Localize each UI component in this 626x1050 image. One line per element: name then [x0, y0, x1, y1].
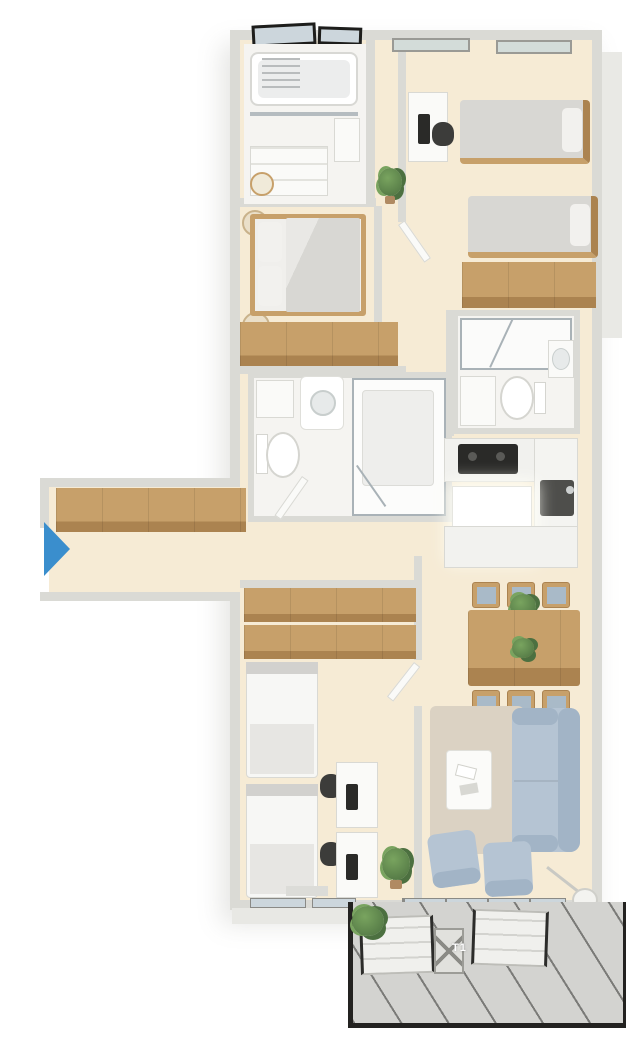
chair-cushion [547, 587, 566, 604]
exterior-wall-right [602, 52, 622, 338]
dining-table-plant [512, 638, 534, 658]
sofa-cushion-seam [514, 780, 558, 782]
window-top-right-1 [392, 38, 470, 52]
bedroom-bl-plant [382, 848, 410, 880]
shower-screen-top-bath [250, 112, 358, 116]
partition-bedroom-bl-right-lower [414, 706, 422, 902]
entry-wall-bottom [40, 592, 240, 601]
armchair-back [485, 879, 534, 897]
bathroom-middle-toilet-bowl [266, 432, 300, 478]
balcony-lounge-chair-2 [471, 909, 549, 968]
corridor-plant [378, 168, 402, 196]
armchair-1 [426, 829, 481, 889]
bathroom-middle-cabinet [256, 380, 294, 418]
kitchen-faucet [566, 486, 574, 494]
window-bottom-1 [250, 898, 306, 908]
partition-master-right [374, 206, 382, 326]
partition-bedroom-tr-left [398, 52, 406, 222]
bathroom-right-toilet-tank [534, 382, 546, 414]
bathroom-middle-shower-tray [362, 390, 434, 486]
bedroom-tr-bed-1-pillow [562, 108, 582, 152]
partition-bath-top-right [366, 40, 375, 206]
kitchen-burner-2 [496, 452, 505, 461]
bedroom-tr-bed-2-pillow [570, 204, 590, 246]
chair-cushion [477, 587, 496, 604]
bedroom-bl-bed-2-headboard [246, 784, 318, 796]
bathroom-middle-basin-bowl [310, 390, 336, 416]
kitchen-cooktop [458, 444, 518, 474]
window-top-left-2 [318, 26, 363, 46]
bathroom-right-toilet-bowl [500, 376, 534, 420]
bedroom-tr-office-chair [432, 122, 454, 146]
master-bed-pillow-2 [258, 266, 282, 306]
bedroom-bl-wardrobe-2 [244, 625, 416, 659]
bathroom-right-cabinet [460, 376, 496, 426]
entry-wall-left-stub [40, 478, 49, 528]
sofa-backrest [558, 708, 580, 852]
bathroom-right-basin-bowl [552, 348, 570, 370]
window-top-right-2 [496, 40, 572, 54]
dining-chair-top-3 [542, 582, 570, 608]
armchair-2 [483, 841, 534, 897]
balcony-glass-label: T1 [452, 942, 478, 956]
entry-wardrobe [56, 488, 246, 532]
drying-rack [262, 58, 300, 88]
corridor-plant-pot [385, 196, 395, 204]
bedroom-bl-wardrobe-1 [244, 588, 416, 622]
side-cabinet [334, 118, 360, 162]
bedroom-tr-wardrobe [462, 262, 596, 308]
bedroom-bl-laptop-2 [346, 854, 358, 880]
bedroom-bl-bed-1-headboard [246, 662, 318, 674]
bedroom-bl-plant-pot [390, 880, 402, 889]
master-bed-duvet [286, 218, 360, 312]
master-bed-pillow-1 [258, 222, 282, 262]
sofa-armrest-top [512, 708, 558, 725]
partition-bedroom-bl-top [240, 580, 416, 588]
dining-chair-top-1 [472, 582, 500, 608]
bedroom-bl-bed-1-blanket [250, 724, 314, 774]
coffee-table [446, 750, 492, 810]
balcony-hanging-plant [352, 906, 384, 936]
master-wardrobe [240, 322, 398, 366]
exterior-ledge-bottom-left [232, 908, 350, 924]
entry-wall-top [40, 478, 240, 487]
bedroom-tr-laptop [418, 114, 430, 144]
kitchen-peninsula [444, 526, 578, 568]
bedroom-bl-laptop-1 [346, 784, 358, 810]
floor-plan: T1 [0, 0, 626, 1050]
bedroom-bl-shelf [286, 886, 328, 896]
stool [250, 172, 274, 196]
entry-arrow [44, 522, 70, 576]
kitchen-burner-1 [468, 452, 477, 461]
